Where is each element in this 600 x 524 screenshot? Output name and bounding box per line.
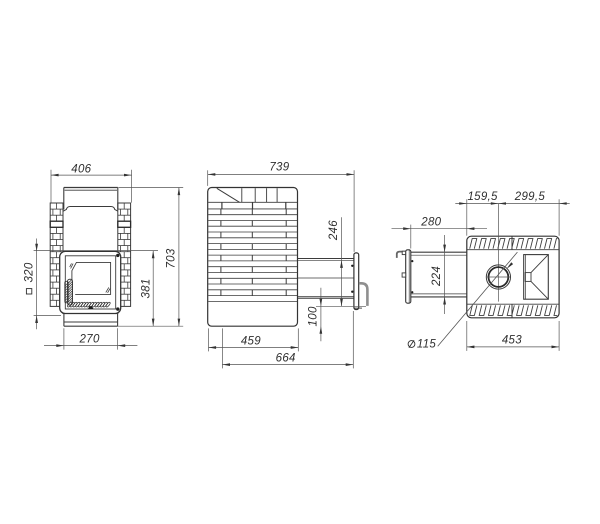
svg-text:100: 100 xyxy=(308,306,320,326)
svg-text:115: 115 xyxy=(417,339,437,351)
svg-text:453: 453 xyxy=(502,335,522,347)
svg-text:703: 703 xyxy=(166,248,178,268)
svg-text:459: 459 xyxy=(241,335,261,347)
svg-text:320: 320 xyxy=(24,262,36,282)
svg-text:406: 406 xyxy=(71,163,91,175)
svg-text:664: 664 xyxy=(276,352,296,364)
svg-text:159,5: 159,5 xyxy=(467,191,498,203)
svg-text:739: 739 xyxy=(269,162,289,174)
svg-text:299,5: 299,5 xyxy=(514,191,546,203)
svg-text:246: 246 xyxy=(328,220,340,241)
svg-text:224: 224 xyxy=(431,266,443,287)
svg-text:280: 280 xyxy=(420,216,441,228)
svg-text:270: 270 xyxy=(79,334,100,346)
svg-text:381: 381 xyxy=(140,278,152,298)
